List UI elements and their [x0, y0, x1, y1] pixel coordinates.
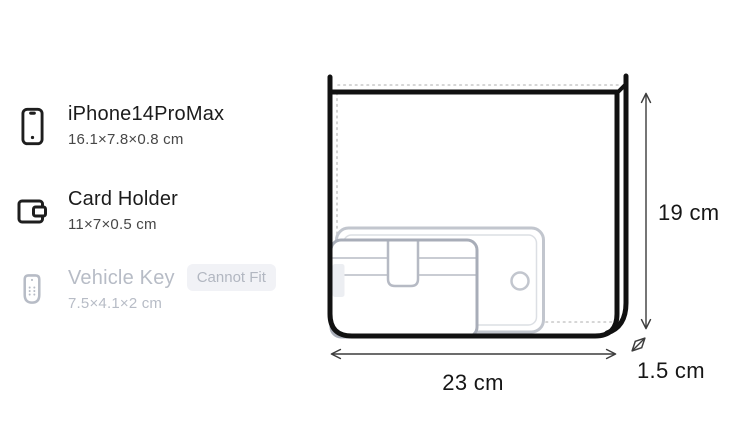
height-dimension-label: 19 cm [658, 200, 719, 225]
bag-fit-guide: iPhone14ProMax 16.1×7.8×0.8 cm Card Hold… [0, 0, 750, 426]
depth-dimension-arrow: 1.5 cm [633, 339, 705, 384]
height-dimension-arrow: 19 cm [646, 94, 719, 328]
depth-dimension-label: 1.5 cm [637, 358, 705, 383]
width-dimension-arrow: 23 cm [332, 354, 615, 395]
ghost-card-holder [331, 240, 477, 337]
width-dimension-label: 23 cm [442, 370, 503, 395]
bag-diagram: 19 cm 23 cm 1.5 cm [0, 0, 750, 426]
